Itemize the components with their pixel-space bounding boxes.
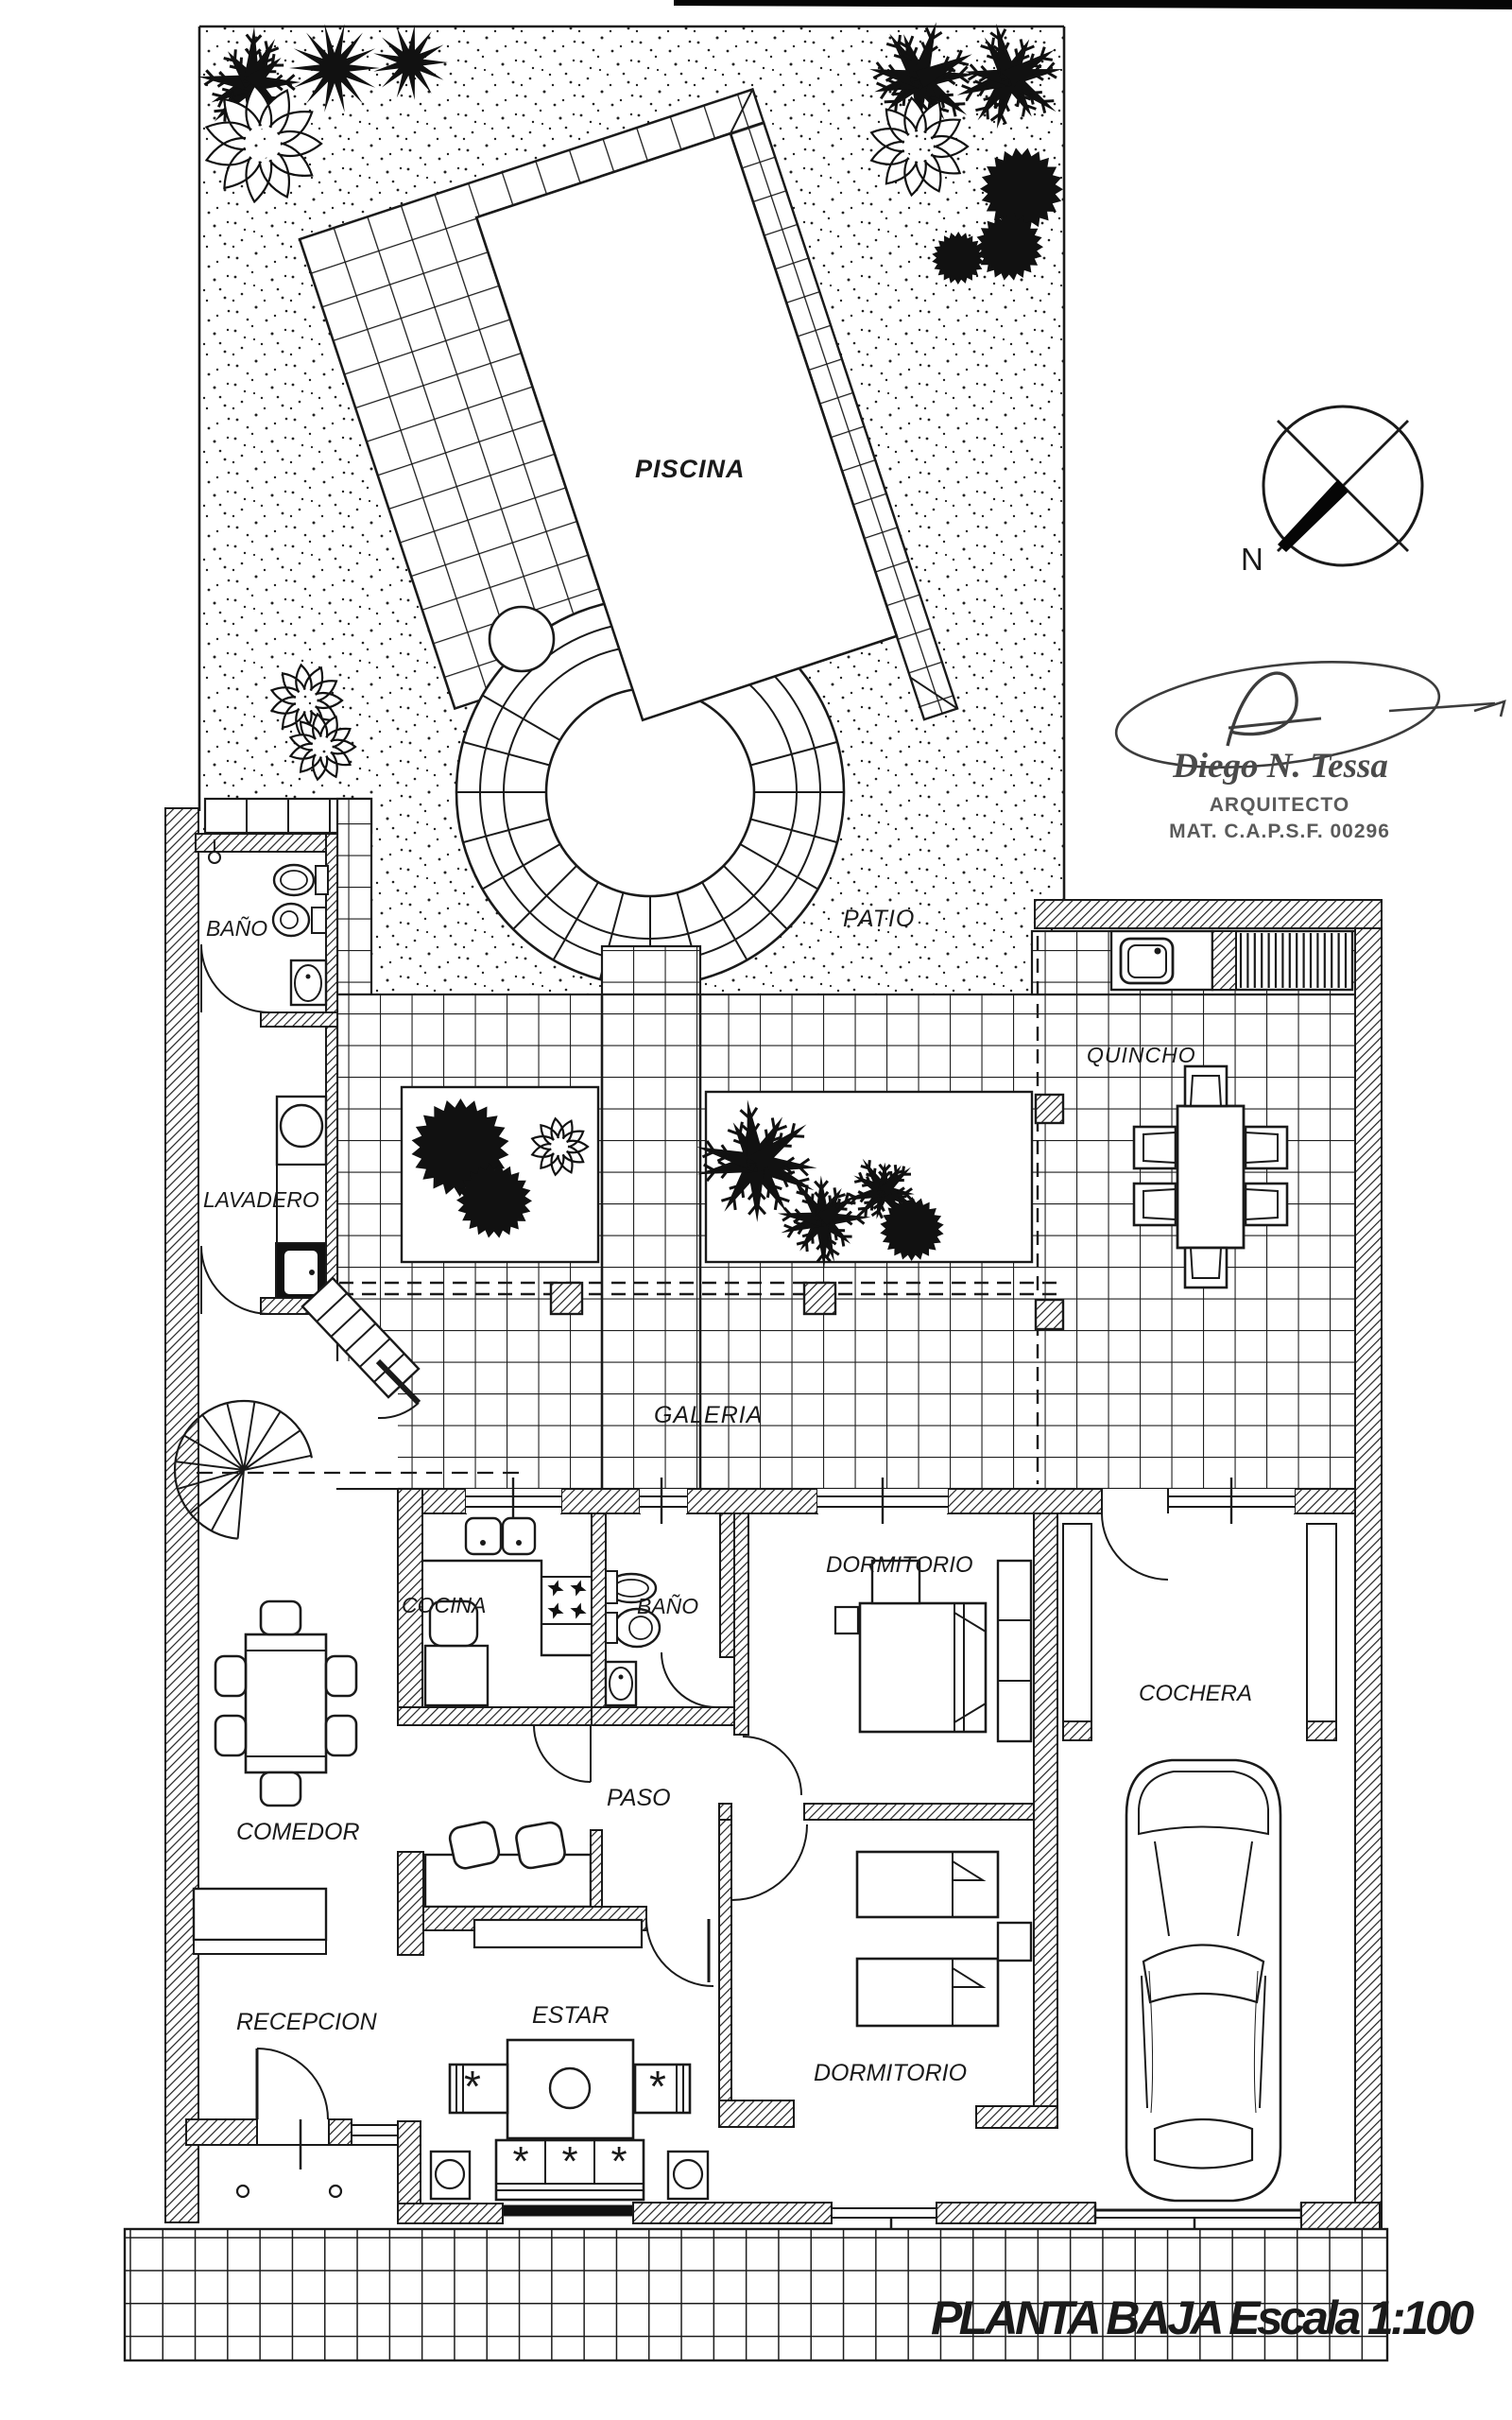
- svg-text:QUINCHO: QUINCHO: [1087, 1043, 1196, 1067]
- svg-text:*: *: [610, 2138, 627, 2185]
- svg-text:BAÑO: BAÑO: [206, 916, 267, 941]
- svg-text:PISCINA: PISCINA: [635, 455, 746, 483]
- svg-text:PLANTA BAJA Escala 1:100: PLANTA BAJA Escala 1:100: [931, 2291, 1474, 2344]
- svg-text:COMEDOR: COMEDOR: [236, 1819, 360, 1845]
- svg-text:*: *: [561, 2138, 577, 2185]
- svg-text:BAÑO: BAÑO: [637, 1594, 698, 1618]
- svg-text:DORMITORIO: DORMITORIO: [814, 2060, 967, 2086]
- svg-text:GALERIA: GALERIA: [654, 1402, 763, 1428]
- svg-text:ARQUITECTO: ARQUITECTO: [1210, 794, 1349, 816]
- svg-text:COCINA: COCINA: [402, 1593, 486, 1617]
- svg-text:*: *: [512, 2138, 528, 2185]
- svg-text:RECEPCION: RECEPCION: [236, 2009, 378, 2035]
- svg-text:MAT. C.A.P.S.F. 00296: MAT. C.A.P.S.F. 00296: [1169, 821, 1390, 842]
- svg-text:ESTAR: ESTAR: [532, 2002, 610, 2029]
- svg-text:N: N: [1241, 542, 1263, 577]
- svg-text:LAVADERO: LAVADERO: [203, 1187, 319, 1212]
- svg-text:DORMITORIO: DORMITORIO: [826, 1552, 973, 1578]
- svg-text:*: *: [464, 2062, 481, 2111]
- svg-text:PASO: PASO: [607, 1785, 671, 1811]
- svg-text:*: *: [649, 2062, 666, 2111]
- svg-text:Diego N. Tessa: Diego N. Tessa: [1172, 747, 1388, 786]
- svg-text:COCHERA: COCHERA: [1139, 1681, 1252, 1706]
- svg-text:PATIO: PATIO: [843, 906, 915, 932]
